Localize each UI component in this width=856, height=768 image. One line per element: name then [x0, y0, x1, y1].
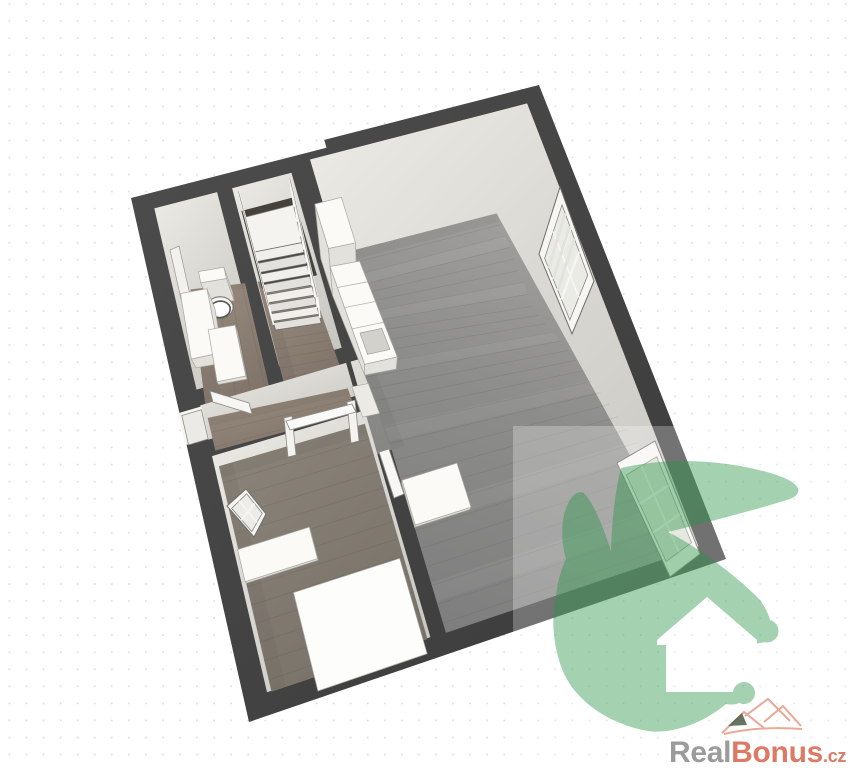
svg-text:RealBonus.cz: RealBonus.cz: [669, 736, 846, 768]
